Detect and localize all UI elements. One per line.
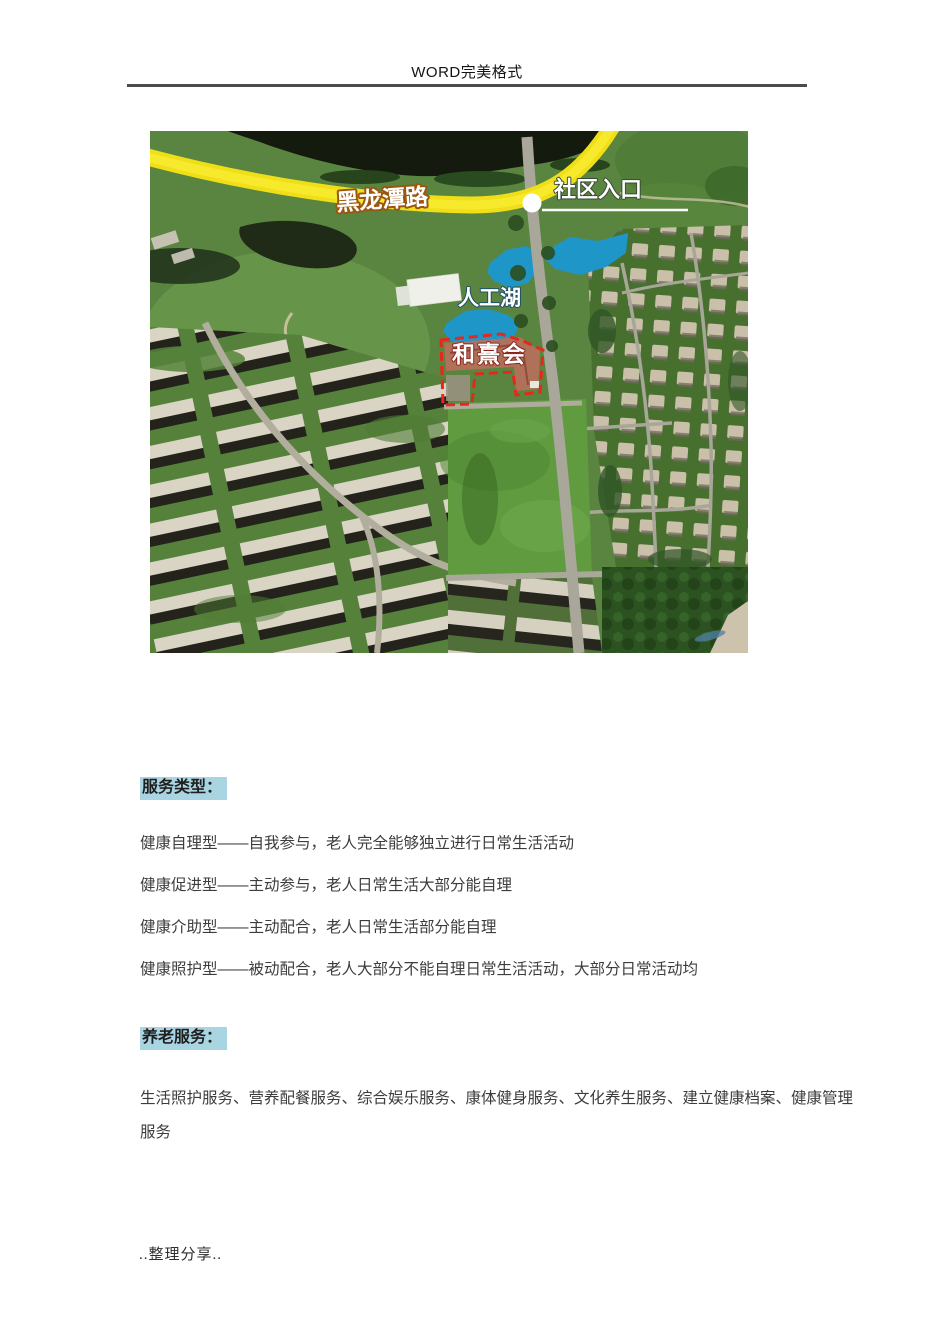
section-heading-elderly-services: 养老服务：	[140, 1027, 227, 1050]
entrance-label: 社区入口	[554, 177, 642, 202]
open-field	[440, 399, 604, 578]
paragraph-health-promotion: 健康促进型——主动参与，老人日常生活大部分能自理	[140, 875, 512, 897]
paragraph-service-list: 生活照护服务、营养配餐服务、综合娱乐服务、康体健身服务、文化养生服务、建立健康档…	[140, 1082, 856, 1150]
facility-label: 和熹会	[452, 341, 527, 367]
paragraph-nursing: 健康照护型——被动配合，老人大部分不能自理日常生活活动，大部分日常活动均	[140, 959, 698, 981]
paragraph-self-care: 健康自理型——自我参与，老人完全能够独立进行日常生活活动	[140, 833, 574, 855]
lake-label: 人工湖	[458, 287, 521, 310]
section-heading-service-types: 服务类型：	[140, 777, 227, 800]
header-divider	[127, 84, 807, 87]
forest	[602, 567, 748, 653]
page-header-title: WORD完美格式	[127, 61, 807, 82]
site-map-image: 黑龙潭路 社区入口 人工湖 和熹会	[150, 131, 748, 653]
entrance-marker-icon	[523, 194, 542, 213]
paragraph-assisted: 健康介助型——主动配合，老人日常生活部分能自理	[140, 917, 497, 939]
footer-note: ..整理分享..	[139, 1243, 222, 1264]
site-satellite-map: 黑龙潭路 社区入口 人工湖 和熹会	[150, 131, 748, 653]
